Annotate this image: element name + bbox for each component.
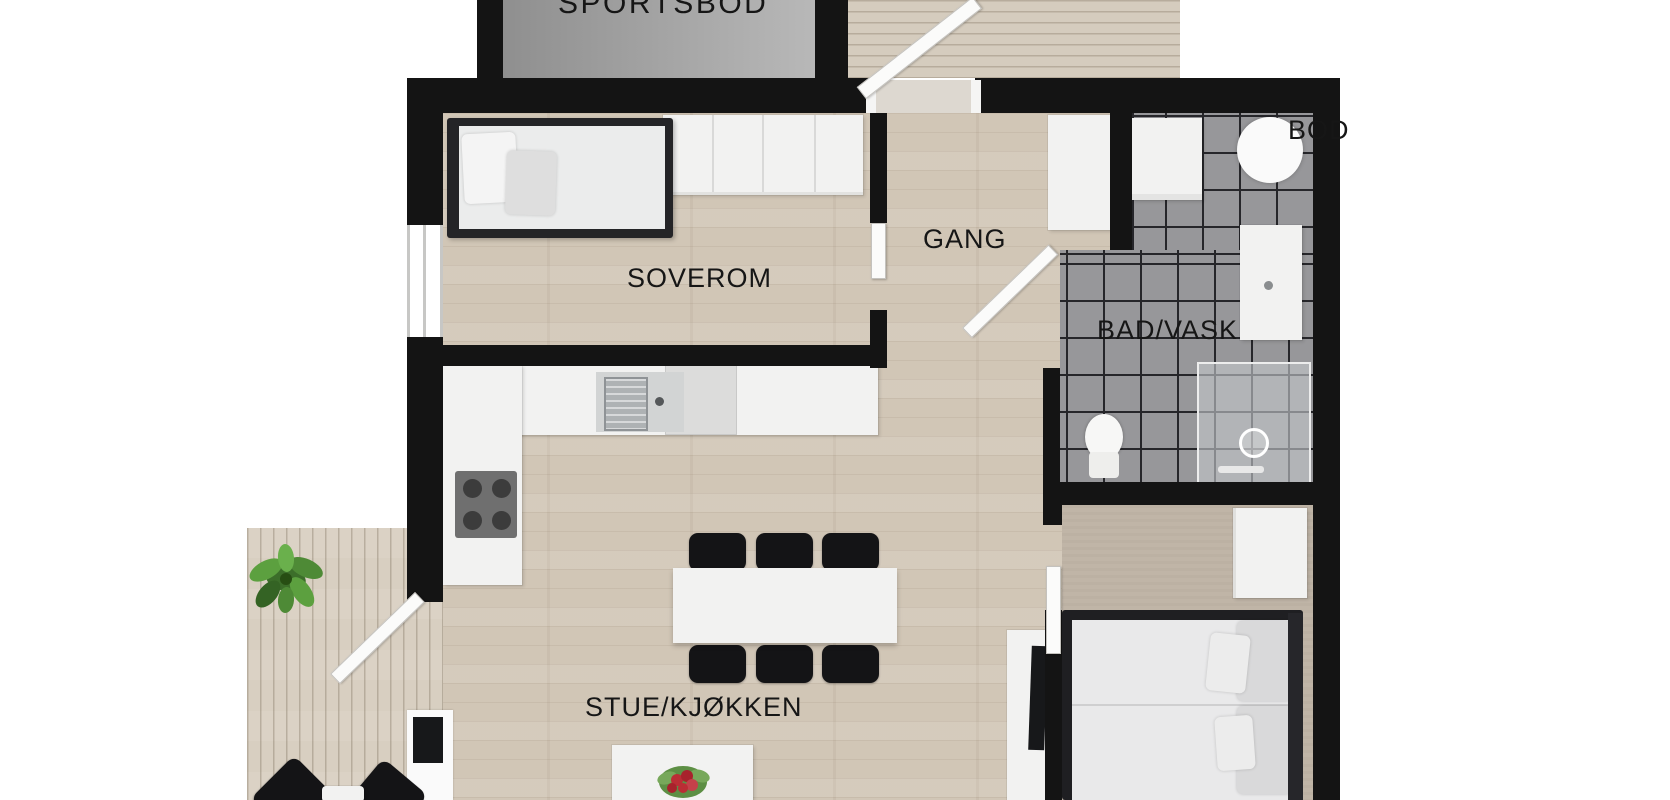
soverom-window xyxy=(407,225,443,337)
cooktop-burner xyxy=(463,511,482,530)
dining-chair xyxy=(756,533,813,571)
terrace-side-table xyxy=(322,786,364,800)
room-label-stue-kjokken: STUE/KJØKKEN xyxy=(585,692,803,723)
room-label-bad-vask: BAD/VASK xyxy=(1097,315,1238,346)
right-wall xyxy=(1313,78,1340,800)
cooktop-burner xyxy=(492,511,511,530)
pillow xyxy=(1205,632,1251,694)
dining-chair xyxy=(822,645,879,683)
top-wall-right xyxy=(975,78,1340,113)
bathroom-left-wall xyxy=(1043,368,1060,482)
soverom-bottom-wall xyxy=(407,345,887,366)
flower-bouquet-icon xyxy=(645,758,721,800)
washing-machine xyxy=(1132,118,1202,200)
dining-table xyxy=(673,568,897,643)
pillow xyxy=(505,150,557,216)
hallway-closet xyxy=(1048,115,1113,230)
bathroom-bottom-wall xyxy=(1043,482,1315,505)
kitchen-faucet-icon xyxy=(655,397,664,406)
dining-chair xyxy=(756,645,813,683)
pillow xyxy=(1214,715,1256,772)
left-wall-mid xyxy=(407,337,443,602)
room-label-bod: BOD xyxy=(1288,115,1350,146)
soverom-right-wall-upper xyxy=(870,95,887,223)
plant-icon xyxy=(236,536,336,622)
left-wall-upper xyxy=(407,78,443,225)
sportsbod-left-wall xyxy=(477,0,503,78)
room-label-sportsbod: SPORTSBOD xyxy=(558,0,768,21)
room-label-gang: GANG xyxy=(923,224,1007,255)
bedroom2-wall-stub xyxy=(1043,505,1062,525)
room-label-soverom: SOVEROM xyxy=(627,263,772,294)
bedroom2-wardrobe xyxy=(1233,508,1307,598)
hallway-bath-wall xyxy=(1110,113,1132,250)
vanity-faucet-icon xyxy=(1264,281,1273,290)
living-window-panel xyxy=(413,717,443,763)
entrance-threshold xyxy=(872,80,975,113)
top-wall-left xyxy=(407,78,872,113)
cooktop-burner xyxy=(492,479,511,498)
entrance-frame xyxy=(971,80,981,113)
bedroom2-door xyxy=(1046,566,1061,654)
soverom-door xyxy=(871,223,886,279)
floor-plan: SPORTSBOD SOVEROM GANG BAD/VASK BOD STUE… xyxy=(0,0,1670,800)
shower-drain xyxy=(1218,466,1264,473)
double-bed-headboard xyxy=(1288,613,1303,800)
sportsbod-right-wall xyxy=(815,0,848,78)
shower-head-icon xyxy=(1239,428,1269,458)
soverom-wardrobe xyxy=(663,115,863,195)
dining-chair xyxy=(689,645,746,683)
kitchen-sink xyxy=(604,377,648,431)
dining-chair xyxy=(689,533,746,571)
dining-chair xyxy=(822,533,879,571)
cooktop-burner xyxy=(463,479,482,498)
toilet-tank xyxy=(1089,452,1119,478)
